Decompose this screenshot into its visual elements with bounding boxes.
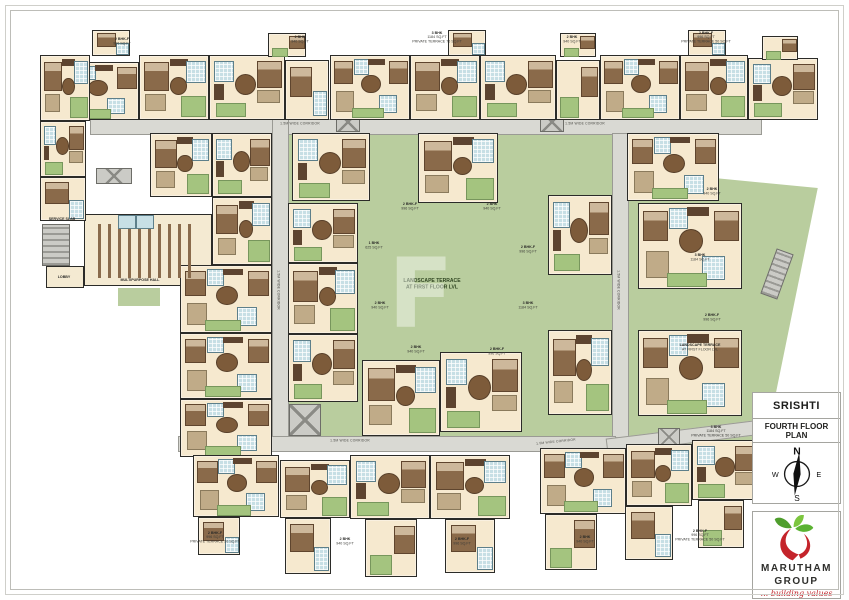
apartment-unit bbox=[430, 455, 510, 519]
balcony bbox=[217, 505, 251, 515]
dining-table-icon bbox=[715, 457, 734, 476]
corridor-label: 1.5M WIDE CORRIDOR bbox=[276, 270, 279, 310]
compass-icon: N W E S bbox=[765, 444, 829, 502]
bathroom bbox=[591, 338, 609, 367]
balcony bbox=[487, 103, 517, 118]
bed-icon bbox=[782, 39, 797, 52]
bed-icon bbox=[436, 462, 465, 490]
title-panel: SRISHTI FOURTH FLOOR PLAN N W E S MARUTH… bbox=[752, 392, 841, 599]
sofa-icon bbox=[333, 235, 354, 247]
apartment-unit bbox=[209, 55, 285, 120]
balcony bbox=[370, 555, 392, 575]
bed-icon bbox=[248, 339, 270, 363]
bathroom bbox=[214, 61, 234, 82]
terrace-patch bbox=[118, 288, 160, 306]
apartment-unit bbox=[762, 36, 798, 60]
bathroom bbox=[313, 91, 328, 116]
unit-area-label: 2 BHK-F996 SQ.FT bbox=[401, 203, 419, 212]
dining-table-icon bbox=[62, 78, 75, 95]
wardrobe-icon bbox=[95, 65, 113, 71]
apartment-unit bbox=[410, 55, 480, 120]
bed-icon bbox=[724, 506, 743, 530]
bed-icon bbox=[643, 211, 667, 242]
bathroom bbox=[69, 200, 84, 219]
dining-table-icon bbox=[378, 473, 400, 494]
corridor-label: 1.5M WIDE CORRIDOR bbox=[330, 439, 370, 442]
unit-area-label: 2 BHK940 SQ.FT bbox=[371, 302, 389, 311]
balcony bbox=[294, 384, 322, 399]
apartment-unit bbox=[285, 60, 329, 120]
balcony bbox=[550, 548, 572, 567]
apartment-unit bbox=[193, 455, 279, 517]
balcony bbox=[352, 108, 384, 119]
sofa-icon bbox=[187, 370, 207, 391]
hall-seat-rows bbox=[98, 224, 198, 278]
sofa-icon bbox=[69, 151, 83, 163]
balcony bbox=[216, 103, 246, 118]
balcony bbox=[478, 496, 507, 517]
apartment-unit bbox=[288, 203, 358, 263]
bathroom bbox=[216, 139, 232, 160]
bed-icon bbox=[492, 359, 518, 392]
apartment-unit bbox=[480, 55, 556, 120]
bed-icon bbox=[334, 61, 353, 84]
bathroom bbox=[298, 139, 318, 161]
dining-table-icon bbox=[574, 468, 594, 487]
sofa-icon bbox=[793, 91, 814, 104]
bathroom bbox=[446, 359, 467, 384]
bed-icon bbox=[580, 36, 595, 49]
bathroom bbox=[753, 64, 771, 84]
bathroom bbox=[712, 43, 725, 55]
dining-table-icon bbox=[772, 76, 792, 96]
wardrobe-icon bbox=[223, 269, 243, 276]
hall-toilet bbox=[118, 215, 136, 229]
sofa-icon bbox=[632, 481, 652, 497]
unit-area-label: 2 BHK940 SQ.FT bbox=[703, 188, 721, 197]
unit-area-label: 3 BHK1184 SQ.FT bbox=[518, 302, 537, 311]
bed-icon bbox=[589, 202, 610, 235]
wardrobe-icon bbox=[44, 146, 50, 160]
wardrobe-icon bbox=[177, 137, 193, 144]
bathroom bbox=[192, 139, 210, 161]
wardrobe-icon bbox=[655, 448, 672, 455]
sofa-icon bbox=[634, 171, 654, 193]
bed-icon bbox=[185, 404, 207, 425]
sofa-icon bbox=[369, 405, 392, 425]
bed-icon bbox=[714, 211, 738, 242]
wardrobe-icon bbox=[697, 467, 706, 482]
bathroom bbox=[218, 459, 234, 474]
corridor-label: 1.5M WIDE CORRIDOR bbox=[565, 122, 605, 125]
bed-icon bbox=[45, 182, 68, 204]
balcony bbox=[554, 254, 580, 272]
bed-icon bbox=[643, 338, 667, 369]
sofa-icon bbox=[333, 371, 354, 385]
dining-table-icon bbox=[468, 375, 491, 400]
apartment-unit bbox=[139, 55, 209, 120]
bed-icon bbox=[528, 61, 552, 88]
bed-icon bbox=[401, 461, 426, 488]
balcony bbox=[205, 320, 241, 331]
bed-icon bbox=[581, 67, 599, 97]
wardrobe-icon bbox=[580, 452, 598, 458]
dining-table-icon bbox=[216, 353, 238, 372]
apartment-unit bbox=[40, 55, 90, 121]
bathroom bbox=[415, 367, 437, 393]
apartment-unit bbox=[40, 177, 86, 221]
bed-icon bbox=[69, 126, 84, 150]
apartment-unit bbox=[600, 55, 680, 120]
wardrobe-icon bbox=[465, 459, 485, 466]
dining-table-icon bbox=[56, 137, 69, 155]
unit-area-label: 2 BHK-F996 SQ.FT bbox=[113, 38, 131, 47]
apartment-unit bbox=[680, 55, 748, 120]
balcony bbox=[181, 96, 206, 117]
apartment-unit bbox=[212, 133, 272, 197]
dining-table-icon bbox=[216, 286, 238, 305]
bed-icon bbox=[631, 451, 655, 478]
wardrobe-icon bbox=[753, 85, 762, 101]
apartment-unit bbox=[350, 455, 430, 519]
balcony bbox=[698, 484, 725, 498]
dining-table-icon bbox=[235, 74, 256, 95]
balcony bbox=[665, 483, 689, 503]
wardrobe-icon bbox=[396, 365, 416, 373]
balcony bbox=[357, 502, 389, 516]
bathroom bbox=[477, 547, 493, 570]
bathroom bbox=[293, 340, 311, 362]
unit-area-label: 2 BHK-F996 SQ.FT bbox=[488, 348, 506, 357]
balcony bbox=[622, 108, 654, 119]
wardrobe-icon bbox=[223, 337, 243, 343]
dining-table-icon bbox=[361, 75, 380, 93]
wardrobe-icon bbox=[553, 230, 561, 250]
bed-icon bbox=[714, 338, 738, 369]
bathroom bbox=[327, 465, 347, 485]
sofa-icon bbox=[218, 238, 236, 256]
bathroom bbox=[354, 59, 369, 75]
bed-icon bbox=[553, 339, 576, 376]
unit-area-label: 2 BHK940 SQ.FT bbox=[336, 538, 354, 547]
wardrobe-icon bbox=[687, 207, 709, 215]
apartment-unit bbox=[362, 360, 440, 436]
bed-icon bbox=[603, 454, 623, 478]
apartment-unit bbox=[180, 333, 272, 399]
lift-core bbox=[96, 168, 132, 184]
bed-icon bbox=[197, 461, 217, 483]
apartment-unit bbox=[330, 55, 410, 120]
bed-icon bbox=[389, 61, 408, 84]
apartment-unit bbox=[692, 440, 760, 500]
bathroom bbox=[472, 43, 485, 55]
wardrobe-icon bbox=[170, 59, 188, 66]
bathroom bbox=[697, 446, 715, 465]
sofa-icon bbox=[589, 238, 608, 254]
balcony bbox=[218, 180, 242, 194]
dining-table-icon bbox=[312, 220, 332, 239]
bed-icon bbox=[333, 209, 355, 234]
unit-area-label: 2 BHK940 SQ.FT bbox=[576, 536, 594, 545]
unit-area-label: 2 BHK-F996 SQ.FTPRIVATE TERRACE 50 SQ.FT bbox=[675, 530, 725, 543]
unit-area-label: 2 BHK940 SQ.FT bbox=[291, 36, 309, 45]
dining-table-icon bbox=[177, 155, 192, 172]
sofa-icon bbox=[342, 170, 365, 184]
bathroom bbox=[655, 534, 671, 557]
apartment-unit bbox=[548, 195, 612, 275]
wardrobe-icon bbox=[687, 334, 709, 342]
bathroom bbox=[207, 337, 224, 353]
builder-tagline: ... building values bbox=[761, 589, 833, 598]
apartment-unit bbox=[150, 133, 212, 197]
wardrobe-icon bbox=[293, 230, 302, 245]
dining-table-icon bbox=[319, 287, 336, 306]
svg-text:N: N bbox=[793, 446, 800, 457]
unit-area-label: 2 BHK-F996 SQ.FTPRIVATE TERRACE 50 SQ.FT bbox=[190, 532, 240, 545]
wardrobe-icon bbox=[319, 267, 337, 275]
balcony bbox=[766, 51, 782, 60]
balcony bbox=[272, 48, 288, 57]
dining-table-icon bbox=[655, 465, 671, 481]
wardrobe-icon bbox=[356, 483, 366, 499]
apartment-unit bbox=[212, 197, 272, 265]
builder-name: MARUTHAM GROUP bbox=[761, 563, 832, 588]
dining-table-icon bbox=[679, 356, 703, 380]
bathroom bbox=[293, 209, 311, 228]
corridor bbox=[272, 119, 289, 452]
unit-area-label: SERVICE SLAB bbox=[49, 218, 76, 222]
apartment-unit bbox=[556, 60, 600, 120]
sofa-icon bbox=[492, 395, 516, 411]
bed-icon bbox=[185, 339, 207, 363]
wardrobe-icon bbox=[485, 84, 495, 100]
bathroom bbox=[624, 59, 639, 75]
bed-icon bbox=[394, 526, 415, 555]
apartment-unit bbox=[288, 263, 358, 334]
bed-icon bbox=[632, 139, 654, 163]
balcony bbox=[564, 501, 598, 512]
bathroom bbox=[252, 203, 269, 226]
sofa-icon bbox=[416, 94, 437, 111]
unit-area-label: 2 BHK-F996 SQ.FT bbox=[453, 538, 471, 547]
sofa-icon bbox=[257, 90, 280, 103]
wardrobe-icon bbox=[453, 137, 473, 144]
apartment-unit bbox=[418, 133, 498, 203]
wardrobe-icon bbox=[239, 201, 254, 208]
sofa-icon bbox=[646, 378, 668, 405]
bathroom bbox=[726, 61, 745, 83]
sofa-icon bbox=[156, 171, 175, 188]
dining-table-icon bbox=[465, 477, 484, 494]
wardrobe-icon bbox=[638, 59, 655, 65]
apartment-unit bbox=[626, 444, 692, 506]
dining-table-icon bbox=[576, 359, 592, 381]
unit-area-label: 3 BHK1184 SQ.FTPRIVATE TERRACE 50 SQ.FT bbox=[691, 426, 741, 439]
bathroom bbox=[457, 61, 477, 83]
bathroom bbox=[207, 403, 224, 417]
sofa-icon bbox=[554, 381, 573, 403]
dining-table-icon bbox=[233, 151, 250, 172]
wardrobe-icon bbox=[293, 364, 302, 381]
lift-core bbox=[289, 404, 321, 436]
compass: N W E S bbox=[752, 442, 841, 504]
bed-icon bbox=[290, 67, 312, 97]
builder-logo-box: MARUTHAM GROUP ... building values bbox=[752, 511, 841, 599]
bathroom bbox=[553, 202, 570, 227]
plan-title: FOURTH FLOOR PLAN bbox=[752, 418, 841, 443]
sofa-icon bbox=[187, 431, 207, 450]
apartment-unit bbox=[548, 330, 612, 415]
dining-table-icon bbox=[710, 77, 727, 94]
bed-icon bbox=[368, 368, 396, 401]
balcony bbox=[322, 497, 347, 516]
bathroom bbox=[485, 61, 505, 82]
bed-icon bbox=[342, 139, 367, 167]
svg-text:E: E bbox=[816, 470, 821, 479]
bed-icon bbox=[117, 67, 137, 88]
bathroom bbox=[74, 61, 88, 83]
balcony bbox=[560, 97, 579, 118]
sofa-icon bbox=[294, 305, 315, 324]
bed-icon bbox=[544, 454, 564, 478]
bed-icon bbox=[293, 271, 318, 302]
corridor-label: 1.5M WIDE CORRIDOR bbox=[280, 122, 320, 125]
bed-icon bbox=[695, 139, 717, 163]
apartment-unit bbox=[540, 448, 626, 514]
balcony bbox=[447, 411, 479, 429]
bathroom bbox=[472, 139, 494, 163]
sofa-icon bbox=[646, 251, 668, 278]
balcony bbox=[667, 273, 708, 287]
dining-table-icon bbox=[319, 152, 341, 174]
bed-icon bbox=[256, 461, 276, 483]
bathroom bbox=[671, 450, 690, 471]
wardrobe-icon bbox=[311, 464, 329, 470]
sofa-icon bbox=[425, 175, 449, 193]
dining-table-icon bbox=[88, 80, 108, 97]
bathroom bbox=[186, 61, 206, 83]
apartment-unit bbox=[280, 460, 350, 518]
wardrobe-icon bbox=[441, 59, 459, 66]
svg-text:W: W bbox=[771, 470, 778, 479]
bathroom bbox=[669, 208, 688, 228]
builder-watermark: F bbox=[388, 238, 454, 350]
corridor-label: 1.5M WIDE CORRIDOR bbox=[616, 270, 619, 310]
balcony bbox=[564, 48, 580, 57]
unit-area-label: 2 BHK-F996 SQ.FT bbox=[703, 314, 721, 323]
bed-icon bbox=[250, 139, 269, 166]
wardrobe-icon bbox=[233, 458, 251, 464]
bathroom bbox=[314, 547, 329, 571]
dining-table-icon bbox=[311, 480, 328, 495]
bed-icon bbox=[604, 61, 623, 84]
bathroom bbox=[654, 137, 671, 154]
bed-icon bbox=[631, 512, 655, 539]
balcony bbox=[652, 188, 688, 199]
unit-area-label: LANDSCAPE TERRACEAT FIRST FLOOR LVL bbox=[680, 344, 721, 353]
floor-plan-sheet: LANDSCAPE TERRACE AT FIRST FLOOR LVL F M… bbox=[0, 0, 849, 600]
unit-area-label: 3 BHK1184 SQ.FTPRIVATE TERRACE 75 SQ.FT bbox=[412, 32, 462, 45]
dining-table-icon bbox=[216, 417, 238, 434]
dining-table-icon bbox=[631, 75, 650, 93]
wardrobe-icon bbox=[216, 161, 224, 177]
sofa-icon bbox=[686, 94, 706, 111]
lobby-label: LOBBY bbox=[58, 276, 71, 280]
balcony bbox=[330, 308, 355, 331]
dining-table-icon bbox=[312, 353, 332, 375]
apartment-unit bbox=[365, 519, 417, 577]
sofa-icon bbox=[45, 94, 60, 111]
bed-icon bbox=[144, 62, 169, 90]
hall-toilet bbox=[136, 215, 154, 229]
hall-label: MULTIPURPOSE HALL bbox=[121, 279, 160, 283]
project-name: SRISHTI bbox=[752, 392, 841, 419]
bed-icon bbox=[155, 140, 177, 168]
dining-table-icon bbox=[570, 218, 588, 243]
sofa-icon bbox=[437, 493, 461, 510]
balcony bbox=[452, 96, 477, 117]
bed-icon bbox=[659, 61, 678, 84]
apartment-unit bbox=[288, 334, 358, 402]
sofa-icon bbox=[145, 94, 166, 111]
unit-area-label: 1 BHK625 SQ.FT bbox=[365, 242, 383, 251]
bathroom bbox=[207, 269, 224, 286]
sofa-icon bbox=[286, 495, 307, 510]
apartment-unit bbox=[625, 506, 673, 560]
unit-area-label: 3 BHK1184 SQ.FT bbox=[690, 254, 709, 263]
bed-icon bbox=[248, 271, 270, 295]
bathroom bbox=[565, 452, 581, 468]
apartment-unit bbox=[292, 133, 370, 201]
wardrobe-icon bbox=[576, 335, 592, 344]
dining-table-icon bbox=[453, 157, 472, 175]
balcony bbox=[248, 240, 270, 262]
balcony bbox=[754, 103, 782, 117]
wardrobe-icon bbox=[446, 387, 456, 407]
bed-icon bbox=[793, 64, 815, 90]
unit-area-label: 2 BHK940 SQ.FT bbox=[483, 203, 501, 212]
bed-icon bbox=[424, 141, 453, 172]
marutham-logo-icon bbox=[771, 515, 823, 563]
wardrobe-icon bbox=[298, 163, 308, 180]
balcony bbox=[409, 408, 437, 432]
wardrobe-icon bbox=[670, 137, 690, 144]
wardrobe-icon bbox=[710, 59, 727, 66]
balcony bbox=[466, 178, 495, 200]
apartment-unit bbox=[40, 121, 86, 177]
wardrobe-icon bbox=[214, 84, 224, 100]
balcony bbox=[187, 174, 209, 195]
sofa-icon bbox=[401, 489, 425, 502]
balcony bbox=[45, 162, 64, 175]
bed-icon bbox=[685, 62, 709, 90]
bathroom bbox=[356, 461, 377, 482]
unit-area-label: 2 BHK-F996 SQ.FT bbox=[519, 246, 537, 255]
bathroom bbox=[44, 126, 57, 144]
bed-icon bbox=[257, 61, 281, 88]
dining-table-icon bbox=[506, 74, 527, 95]
balcony bbox=[299, 183, 330, 198]
svg-text:S: S bbox=[794, 494, 800, 502]
bed-icon bbox=[216, 205, 238, 235]
balcony bbox=[70, 97, 88, 118]
bed-icon bbox=[248, 404, 270, 425]
dining-table-icon bbox=[170, 77, 187, 94]
apartment-unit bbox=[748, 58, 818, 120]
bathroom bbox=[335, 270, 355, 294]
wardrobe-icon bbox=[223, 402, 243, 408]
wardrobe-icon bbox=[368, 59, 385, 65]
